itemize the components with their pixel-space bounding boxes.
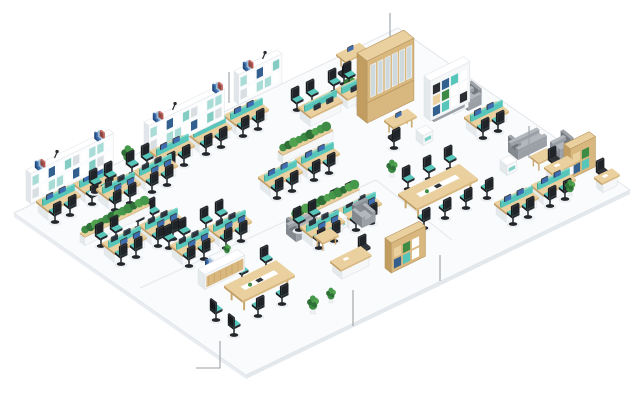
isometric-office-illustration [0, 0, 635, 400]
office-floorplan-canvas [0, 0, 635, 400]
